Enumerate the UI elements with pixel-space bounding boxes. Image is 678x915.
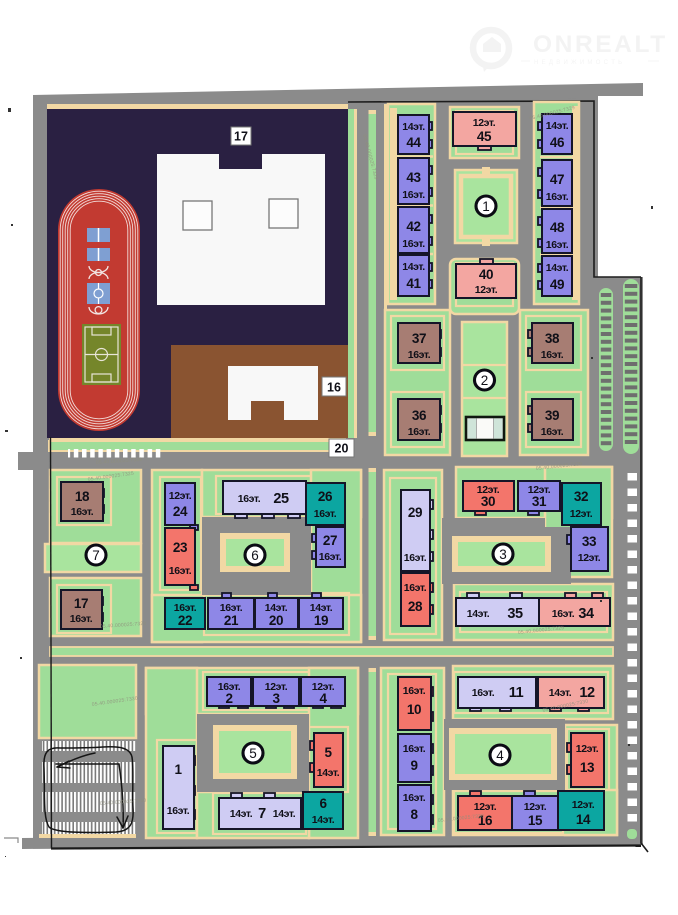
svg-text:40: 40 bbox=[479, 267, 493, 282]
svg-text:25: 25 bbox=[273, 491, 289, 507]
svg-text:4: 4 bbox=[319, 691, 327, 706]
svg-text:14: 14 bbox=[576, 812, 591, 827]
svg-text:20: 20 bbox=[335, 442, 349, 456]
svg-text:7: 7 bbox=[92, 548, 100, 563]
svg-text:12эт.: 12эт. bbox=[474, 801, 497, 813]
svg-text:12эт.: 12эт. bbox=[475, 284, 498, 296]
svg-text:2: 2 bbox=[225, 691, 232, 706]
svg-text:21: 21 bbox=[224, 613, 239, 628]
svg-text:12эт.: 12эт. bbox=[578, 552, 601, 564]
svg-text:5: 5 bbox=[249, 746, 257, 761]
svg-text:16эт.: 16эт. bbox=[546, 191, 569, 203]
svg-text:9: 9 bbox=[410, 758, 417, 773]
svg-text:16эт.: 16эт. bbox=[402, 238, 425, 250]
svg-text:30: 30 bbox=[481, 494, 495, 509]
svg-text:16эт.: 16эт. bbox=[238, 493, 261, 505]
svg-text:36: 36 bbox=[412, 408, 427, 423]
svg-text:16эт.: 16эт. bbox=[167, 805, 190, 817]
svg-text:16эт.: 16эт. bbox=[541, 349, 564, 361]
svg-text:16эт.: 16эт. bbox=[546, 239, 569, 251]
svg-text:12эт.: 12эт. bbox=[473, 117, 496, 129]
svg-text:3: 3 bbox=[499, 547, 507, 562]
svg-text:12эт.: 12эт. bbox=[572, 799, 595, 811]
svg-text:38: 38 bbox=[545, 331, 560, 346]
svg-text:16эт.: 16эт. bbox=[403, 743, 426, 755]
svg-text:34: 34 bbox=[578, 606, 594, 622]
svg-text:42: 42 bbox=[406, 219, 420, 234]
svg-text:20: 20 bbox=[269, 613, 283, 628]
svg-text:14эт.: 14эт. bbox=[317, 767, 340, 779]
svg-text:32: 32 bbox=[574, 489, 588, 504]
svg-text:1: 1 bbox=[174, 762, 182, 777]
svg-text:16: 16 bbox=[327, 381, 341, 395]
svg-text:24: 24 bbox=[173, 504, 188, 519]
svg-text:14эт.: 14эт. bbox=[546, 120, 569, 132]
svg-text:Н Е Д В И Ж И М О С Т Ь: Н Е Д В И Ж И М О С Т Ь bbox=[534, 60, 623, 66]
svg-text:45: 45 bbox=[477, 129, 492, 144]
svg-text:14эт.: 14эт. bbox=[402, 261, 425, 273]
svg-text:12эт.: 12эт. bbox=[570, 508, 593, 520]
svg-text:13: 13 bbox=[580, 760, 595, 775]
svg-text:16эт.: 16эт. bbox=[404, 582, 427, 594]
svg-text:41: 41 bbox=[406, 276, 421, 291]
svg-text:16эт.: 16эт. bbox=[403, 792, 426, 804]
svg-text:16эт.: 16эт. bbox=[408, 426, 431, 438]
svg-text:12эт.: 12эт. bbox=[576, 743, 599, 755]
svg-text:44: 44 bbox=[406, 135, 421, 150]
svg-text:16эт.: 16эт. bbox=[541, 426, 564, 438]
svg-text:28: 28 bbox=[408, 599, 423, 614]
svg-text:14эт.: 14эт. bbox=[546, 262, 569, 274]
svg-text:5: 5 bbox=[324, 745, 332, 760]
svg-text:16эт.: 16эт. bbox=[472, 687, 495, 699]
svg-text:47: 47 bbox=[550, 172, 564, 187]
svg-text:4: 4 bbox=[496, 748, 504, 763]
svg-text:18: 18 bbox=[75, 489, 90, 504]
svg-text:11: 11 bbox=[509, 685, 524, 701]
svg-text:12эт.: 12эт. bbox=[524, 801, 547, 813]
svg-text:7: 7 bbox=[258, 806, 266, 822]
svg-text:14эт.: 14эт. bbox=[230, 808, 253, 820]
svg-text:16эт.: 16эт. bbox=[70, 613, 93, 625]
svg-text:14эт.: 14эт. bbox=[467, 608, 490, 620]
svg-text:16эт.: 16эт. bbox=[314, 508, 337, 520]
svg-text:14эт.: 14эт. bbox=[312, 814, 335, 826]
svg-text:1: 1 bbox=[482, 199, 490, 214]
svg-text:29: 29 bbox=[408, 505, 422, 520]
svg-text:39: 39 bbox=[545, 408, 559, 423]
svg-text:6: 6 bbox=[319, 796, 327, 811]
svg-text:46: 46 bbox=[550, 135, 565, 150]
svg-text:16эт.: 16эт. bbox=[169, 565, 192, 577]
svg-text:26: 26 bbox=[318, 489, 333, 504]
svg-text:16эт.: 16эт. bbox=[402, 189, 425, 201]
svg-text:14эт.: 14эт. bbox=[549, 687, 572, 699]
svg-text:8: 8 bbox=[410, 807, 418, 822]
svg-text:16эт.: 16эт. bbox=[404, 552, 427, 564]
svg-text:16эт.: 16эт. bbox=[319, 551, 342, 563]
svg-text:22: 22 bbox=[178, 613, 192, 628]
svg-text:6: 6 bbox=[251, 548, 259, 563]
svg-text:12эт.: 12эт. bbox=[169, 490, 192, 502]
svg-text:16эт.: 16эт. bbox=[408, 349, 431, 361]
svg-text:48: 48 bbox=[550, 220, 565, 235]
svg-text:35: 35 bbox=[507, 606, 523, 622]
svg-text:ONREALT: ONREALT bbox=[533, 31, 668, 58]
svg-text:33: 33 bbox=[582, 534, 597, 549]
svg-text:37: 37 bbox=[412, 331, 426, 346]
svg-text:16эт.: 16эт. bbox=[403, 685, 426, 697]
svg-text:27: 27 bbox=[323, 533, 337, 548]
svg-text:14эт.: 14эт. bbox=[273, 808, 296, 820]
svg-text:16эт.: 16эт. bbox=[552, 608, 575, 620]
svg-text:2: 2 bbox=[481, 373, 489, 388]
svg-text:17: 17 bbox=[74, 596, 88, 611]
svg-text:14эт.: 14эт. bbox=[402, 121, 425, 133]
svg-text:16эт.: 16эт. bbox=[71, 506, 94, 518]
svg-text:23: 23 bbox=[173, 540, 188, 555]
svg-text:31: 31 bbox=[532, 494, 547, 509]
svg-text:3: 3 bbox=[272, 691, 280, 706]
svg-text:43: 43 bbox=[406, 170, 421, 185]
svg-text:17: 17 bbox=[234, 130, 248, 144]
svg-text:10: 10 bbox=[407, 702, 421, 717]
svg-text:15: 15 bbox=[528, 813, 543, 828]
svg-text:19: 19 bbox=[314, 613, 328, 628]
svg-text:49: 49 bbox=[550, 277, 564, 292]
